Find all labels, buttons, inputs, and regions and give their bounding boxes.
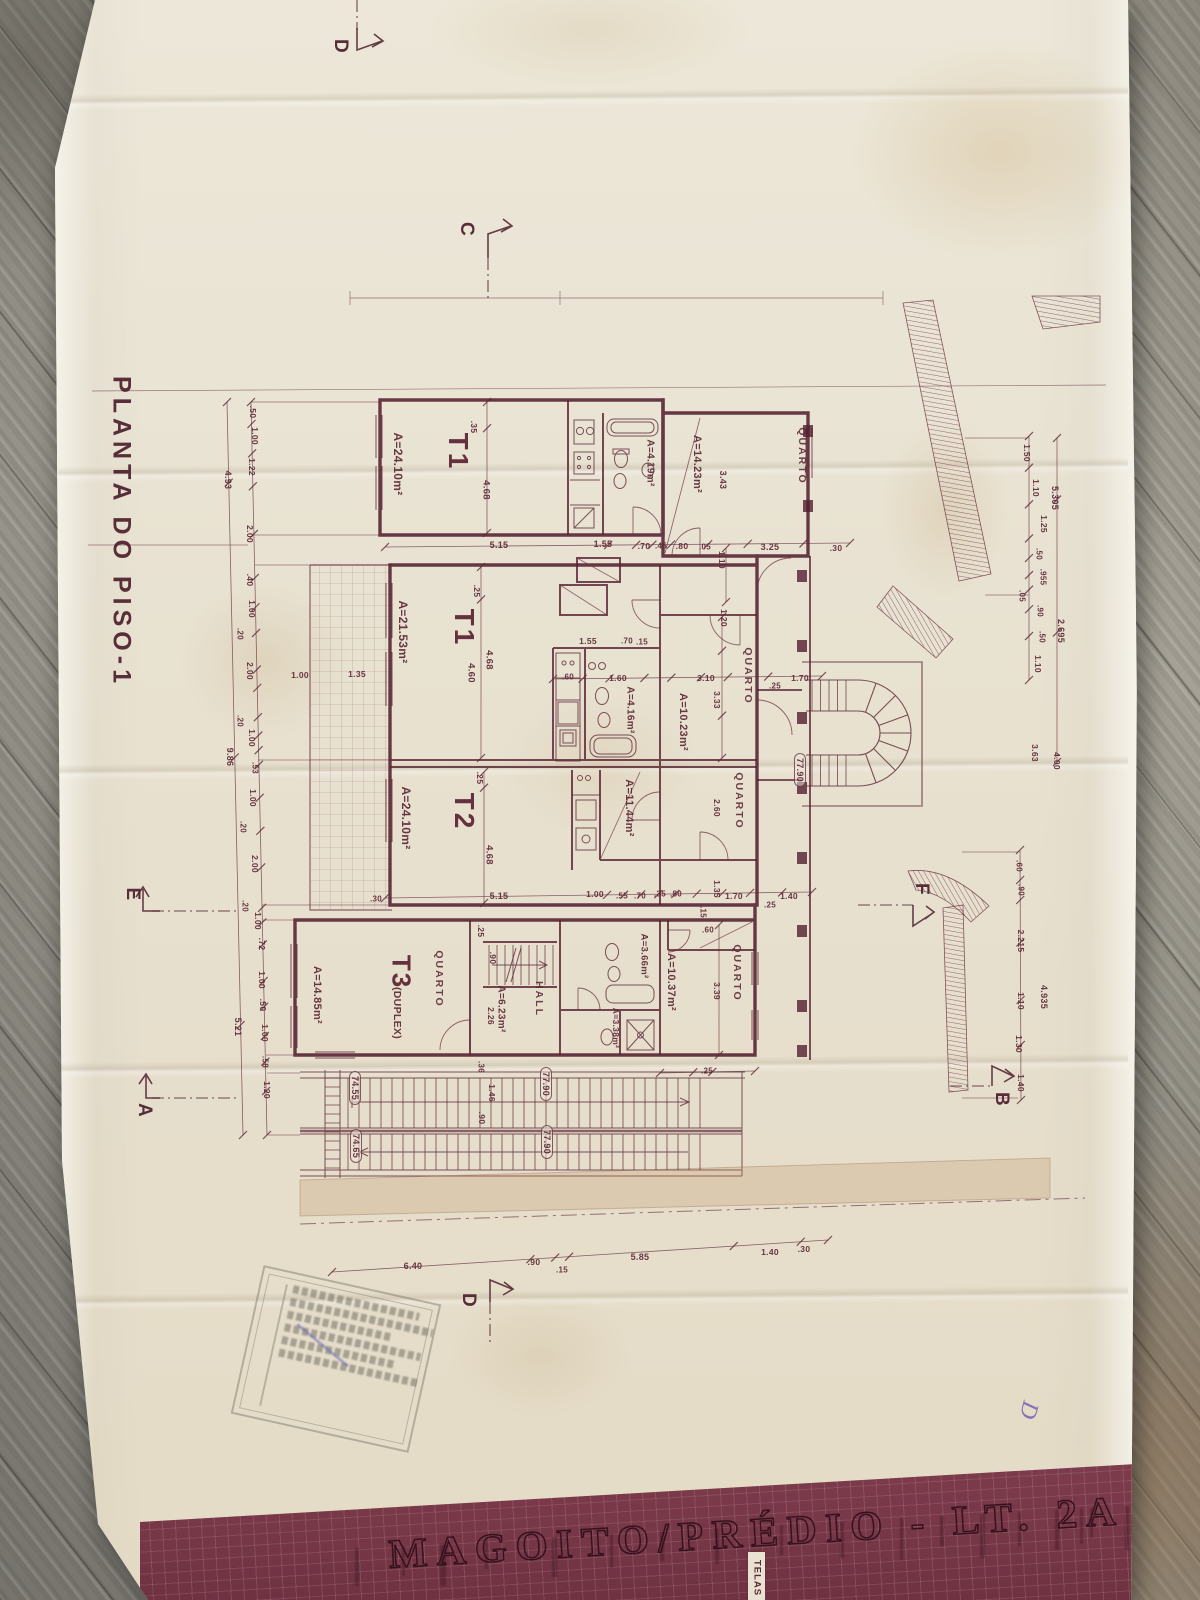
illegible-band-text <box>1125 1506 1129 1550</box>
dim: 1.25 <box>1039 515 1049 533</box>
dim: 1.46 <box>487 1084 497 1102</box>
dim: 1.10 <box>1033 655 1043 673</box>
area-label: A=10.37m² <box>665 953 677 1011</box>
dim: .20 <box>236 715 245 727</box>
dim: 1.10 <box>1031 479 1041 497</box>
dim: .25 <box>476 925 486 938</box>
dim: 1.55 <box>579 636 597 646</box>
dim: 2.00 <box>245 662 255 680</box>
illegible-band-text <box>1080 1508 1083 1544</box>
dim: 3.33 <box>712 691 722 709</box>
dim: .53 <box>251 762 260 774</box>
dim: 1.35 <box>348 669 366 679</box>
dim: .55 <box>616 892 628 901</box>
dim: .15 <box>636 638 648 647</box>
dim: 1.50 <box>1022 444 1032 462</box>
dim: 2.00 <box>250 855 260 873</box>
section-marker-c: C <box>455 222 477 236</box>
dim: 1.70 <box>725 891 743 901</box>
dim: .15 <box>556 1266 568 1275</box>
annotation-layer: PLANTA DO PISO-1DCEAFBDT1A=24.10m²A=4.19… <box>0 0 1200 1600</box>
dim: 5.15 <box>490 540 509 550</box>
blueprint-paper: PLANTA DO PISO-1DCEAFBDT1A=24.10m²A=4.19… <box>0 0 1200 1600</box>
section-marker-a: A <box>133 1103 155 1117</box>
dim: .90 <box>477 1112 487 1125</box>
dim: 1.00 <box>291 670 309 680</box>
dim: .25 <box>475 772 485 785</box>
illegible-band-text <box>780 1525 783 1555</box>
dim: .05 <box>1018 590 1027 602</box>
unit-label: T1 <box>448 609 480 648</box>
dim: 2.215 <box>1016 930 1026 953</box>
dim: .30 <box>830 543 843 553</box>
dim: 2.26 <box>486 1007 496 1025</box>
unit-label: T1 <box>442 433 474 472</box>
dim: .36 <box>477 1061 486 1073</box>
illegible-band-text <box>1018 1512 1021 1546</box>
dim: 1.40 <box>1016 1074 1026 1092</box>
dim: .80 <box>676 541 689 551</box>
dim: 9.86 <box>225 748 235 767</box>
section-marker-f: F <box>910 883 932 895</box>
dim: 5.305 <box>1050 486 1060 510</box>
dim: 4.93 <box>223 471 233 490</box>
illegible-band-text <box>440 1544 446 1586</box>
dim: .58 <box>261 1056 270 1068</box>
area-label: A=10.23m² <box>677 693 689 751</box>
dim: 1.40 <box>761 1247 779 1257</box>
dim: 2.695 <box>1056 619 1066 643</box>
dim: 1.00 <box>257 971 267 989</box>
dim: 4.68 <box>481 480 492 500</box>
section-marker-e: E <box>121 888 143 901</box>
dim: .50 <box>1038 631 1047 643</box>
illegible-band-text <box>552 1537 557 1577</box>
area-label: A=24.10m² <box>399 786 413 849</box>
dim: 3.25 <box>761 542 780 552</box>
dim: 1.00 <box>247 600 257 618</box>
dim: 1.20 <box>262 1081 272 1099</box>
dim: .80 <box>670 890 682 899</box>
handwritten-mark: D <box>1013 1398 1044 1422</box>
dim: .15 <box>699 906 708 918</box>
photo-scene: PLANTA DO PISO-1DCEAFBDT1A=24.10m²A=4.19… <box>0 0 1200 1600</box>
dim: .20 <box>241 900 250 912</box>
illegible-band-text <box>660 1531 664 1561</box>
unit-label: T2 <box>448 793 480 832</box>
section-marker-d-bottom: D <box>457 1293 479 1307</box>
elevation-label: 74.55 <box>349 1071 361 1105</box>
area-label: A=11.44m² <box>623 779 635 836</box>
dim: .70 <box>638 541 651 551</box>
dim: .20 <box>239 821 248 833</box>
unit-sublabel: (DUPLEX) <box>391 987 403 1039</box>
dim: 5.15 <box>490 891 509 901</box>
dim: .30 <box>798 1244 811 1254</box>
dim: .955 <box>1039 569 1048 586</box>
dim: .25 <box>472 585 482 598</box>
dim: .72 <box>257 938 267 951</box>
unit-label: T3 <box>386 955 417 989</box>
band-side-label: TELAS <box>748 1552 765 1600</box>
dim: 4.68 <box>484 650 495 670</box>
elevation-label: 77.90 <box>541 1125 553 1159</box>
illegible-band-text <box>715 1528 719 1564</box>
dim: .90 <box>1017 884 1026 896</box>
dim: 1.60 <box>609 673 627 683</box>
dim: 4.60 <box>466 663 477 683</box>
dim: .25 <box>701 1067 713 1076</box>
elevation-label: 74.65 <box>350 1129 362 1163</box>
dim: .05 <box>699 543 711 552</box>
dim: .45 <box>655 542 667 551</box>
dim: 1.35 <box>712 880 722 898</box>
dim: .70 <box>634 892 646 901</box>
illegible-band-text <box>610 1534 613 1568</box>
room-label: QUARTO <box>731 944 743 1001</box>
dim: 1.55 <box>594 539 613 549</box>
dim: .20 <box>236 628 245 640</box>
area-label: A=14.85m² <box>311 966 323 1024</box>
dim: .50 <box>258 999 268 1012</box>
dim: 1.70 <box>791 673 809 683</box>
dim: 3.43 <box>718 471 728 490</box>
dim: .60 <box>1015 860 1024 872</box>
dim: 5.21 <box>233 1018 243 1037</box>
elevation-label: 77.90 <box>540 1067 552 1101</box>
elevation-label: 77.90 <box>794 753 806 787</box>
dim: 4.00 <box>1052 752 1062 770</box>
illegible-band-text <box>1055 1510 1059 1550</box>
room-label: QUARTO <box>742 647 754 704</box>
room-label: HALL <box>533 981 545 1017</box>
dim: 5.85 <box>631 1252 650 1262</box>
area-label: A=4.16m² <box>625 686 636 733</box>
dim: .30 <box>370 895 382 904</box>
dim: 2.00 <box>245 525 255 543</box>
area-label: A=3.66m² <box>639 934 650 979</box>
room-label: QUARTO <box>733 772 745 829</box>
dim: 1.10 <box>717 551 727 569</box>
dim: .90 <box>528 1257 541 1267</box>
area-label: A=3.38m² <box>611 1008 621 1048</box>
dim: 3.63 <box>1030 744 1040 762</box>
room-label: QUARTO <box>433 950 445 1007</box>
dim: .60 <box>562 673 574 682</box>
illegible-band-text <box>980 1514 985 1558</box>
area-label: A=4.19m² <box>645 439 656 486</box>
area-label: A=14.23m² <box>691 435 703 493</box>
dim: 1.00 <box>250 427 260 445</box>
area-label: A=24.10m² <box>391 432 405 495</box>
dim: .50 <box>1035 548 1044 560</box>
dim: .35 <box>469 421 479 434</box>
dim: 3.10 <box>697 673 715 683</box>
illegible-band-text <box>1090 1508 1093 1538</box>
dim: .70 <box>621 637 633 646</box>
illegible-band-text <box>940 1516 944 1546</box>
room-label: QUARTO <box>796 427 808 484</box>
dim: .35 <box>654 890 666 899</box>
dim: .25 <box>769 682 781 691</box>
section-marker-b: B <box>990 1092 1012 1106</box>
dim: 6.40 <box>404 1261 423 1271</box>
dim: 1.22 <box>247 458 257 476</box>
dim: 1.40 <box>780 891 798 901</box>
dim: .90 <box>488 952 498 965</box>
dim: .40 <box>245 574 255 587</box>
section-marker-d-top: D <box>329 39 351 53</box>
dim: .50 <box>248 406 258 419</box>
dim: .60 <box>702 926 714 935</box>
illegible-band-text <box>840 1522 844 1558</box>
dim: .90 <box>1036 605 1045 617</box>
dim: 1.00 <box>586 889 604 899</box>
illegible-band-text <box>402 1546 405 1576</box>
area-label: A=21.53m² <box>396 600 410 663</box>
illegible-band-text <box>485 1541 488 1569</box>
dim: 1.00 <box>260 1024 270 1042</box>
dim: 1.20 <box>719 609 729 627</box>
dim: 1.00 <box>248 789 258 807</box>
dim: 3.39 <box>712 982 722 1000</box>
illegible-band-text <box>900 1518 903 1560</box>
plan-title: PLANTA DO PISO-1 <box>107 376 136 688</box>
illegible-band-text <box>355 1548 359 1586</box>
area-label: A=6.23m² <box>496 985 507 1032</box>
dim: 1.00 <box>247 729 257 747</box>
dim: 4.935 <box>1039 985 1049 1009</box>
dim: 2.60 <box>712 799 722 817</box>
dim: .25 <box>764 901 776 910</box>
dim: 1.00 <box>253 912 263 930</box>
dim: 4.68 <box>484 845 495 865</box>
blueprint-paper-wrap: PLANTA DO PISO-1DCEAFBDT1A=24.10m²A=4.19… <box>0 0 1200 1600</box>
dim: 1.10 <box>1016 992 1026 1010</box>
dim: 1.30 <box>1014 1035 1024 1053</box>
